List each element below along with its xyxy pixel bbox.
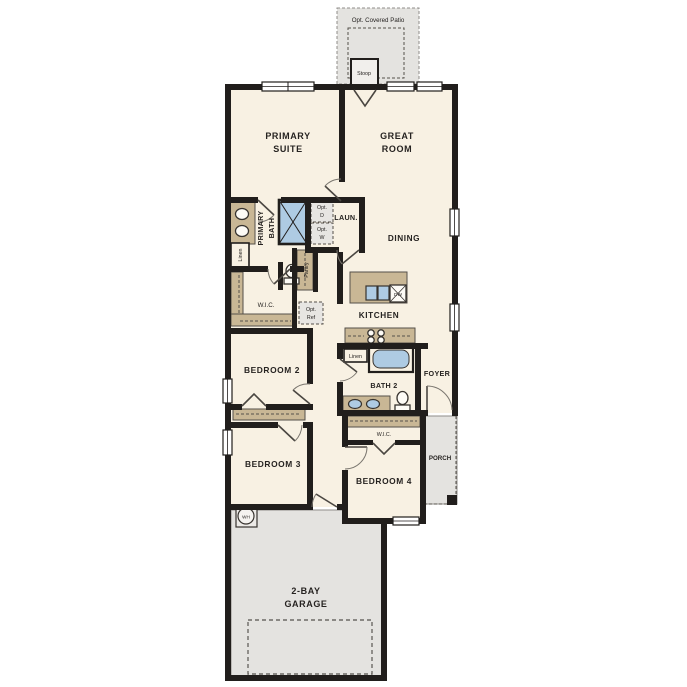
dishwasher-icon: DW: [390, 285, 406, 302]
window-icon: [262, 82, 314, 91]
sink-icon: [236, 226, 249, 237]
opt-washer-label2: W: [320, 235, 325, 241]
laundry-label: LAUN.: [334, 213, 357, 222]
porch: PORCH: [424, 416, 457, 505]
primary-bath-label1: PRIMARY: [256, 211, 265, 246]
sink-icon: [236, 209, 249, 220]
primary-suite-label1: PRIMARY: [265, 131, 310, 141]
toilet-icon: [395, 392, 410, 412]
porch-label: PORCH: [429, 455, 452, 462]
bathtub-icon: [369, 346, 413, 372]
wic-primary-label: W.I.C.: [258, 302, 275, 309]
opt-washer-label1: Opt.: [317, 227, 327, 233]
pantry-label: Pantry: [304, 262, 310, 278]
opt-dryer-label1: Opt.: [317, 205, 327, 211]
linen-closet: Linen: [231, 243, 249, 267]
bedroom4-label: BEDROOM 4: [356, 476, 412, 486]
sink-icon: [367, 400, 380, 409]
window-icon: [223, 430, 232, 455]
garage-label-2: GARAGE: [284, 599, 327, 609]
great-room-label1: GREAT: [380, 131, 414, 141]
dishwasher-label: DW: [394, 292, 402, 298]
kitchen-sink-icon: [366, 286, 389, 300]
porch-post: [447, 495, 457, 505]
stoop: Stoop: [351, 59, 378, 86]
wic4-label: W.I.C.: [377, 432, 391, 438]
linen-closet-bath2: Linen: [344, 349, 367, 362]
garage: 2-BAY GARAGE WH: [231, 506, 383, 677]
wic-shelf-bottom: [231, 314, 295, 326]
window-icon: [223, 379, 232, 403]
primary-suite-label2: SUITE: [273, 144, 303, 154]
floor-plan-canvas: Opt. Covered Patio Stoop PORCH 2-BAY GAR…: [0, 0, 687, 687]
garage-label-1: 2-BAY: [291, 586, 320, 596]
kitchen-label: KITCHEN: [359, 311, 400, 320]
foyer-label: FOYER: [424, 369, 451, 378]
shower-icon: [279, 200, 307, 244]
bedroom3-label: BEDROOM 3: [245, 459, 301, 469]
bath2-label: BATH 2: [370, 381, 397, 390]
dining-label: DINING: [388, 234, 420, 243]
patio-label: Opt. Covered Patio: [352, 17, 405, 24]
great-room-label2: ROOM: [382, 144, 412, 154]
window-icon: [417, 82, 442, 91]
bedroom2-label: BEDROOM 2: [244, 365, 300, 375]
linen2-label: Linen: [349, 354, 362, 360]
window-icon: [387, 82, 414, 91]
opt-fridge-label2: Ref: [307, 315, 316, 321]
floor-plan-drawing: Opt. Covered Patio Stoop PORCH 2-BAY GAR…: [0, 0, 687, 687]
linen-label: Linen: [238, 248, 244, 261]
opt-fridge-label1: Opt.: [306, 307, 316, 313]
window-icon: [450, 209, 459, 236]
water-heater-label: WH: [242, 515, 250, 520]
stoop-label: Stoop: [357, 71, 371, 77]
primary-bath-label2: BATH: [267, 218, 276, 239]
window-icon: [450, 304, 459, 331]
opt-dryer-label2: D: [320, 213, 324, 219]
window-icon: [393, 517, 419, 525]
sink-icon: [349, 400, 362, 409]
